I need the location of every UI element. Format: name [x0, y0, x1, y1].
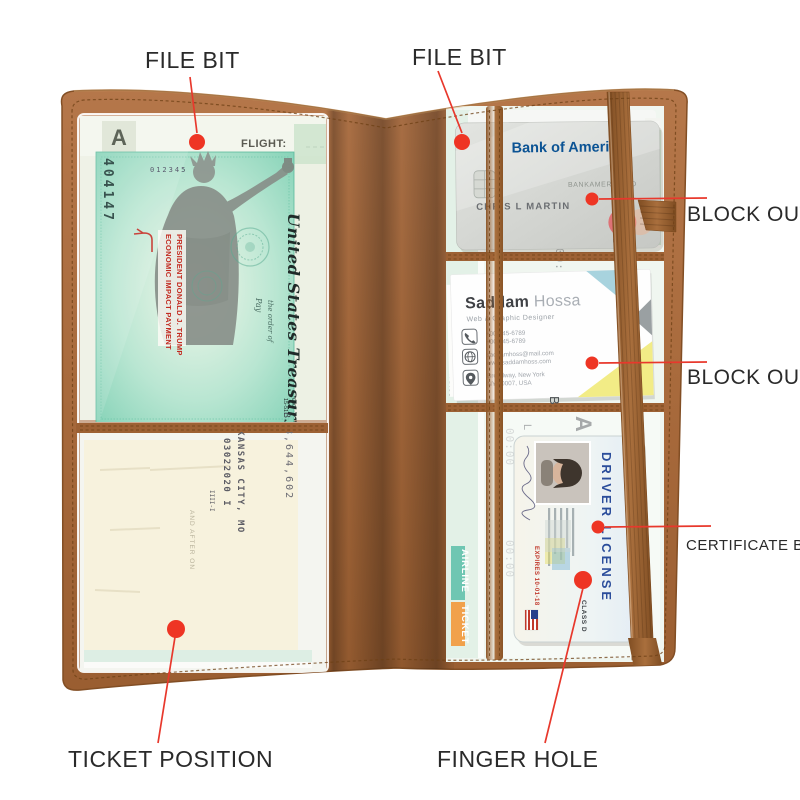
- left-panel: A FLIGHT: 404147 012345: [76, 114, 328, 672]
- checkback-faint-line: AND AFTER ON: [188, 510, 195, 570]
- check-fragment-b: B: [282, 412, 292, 418]
- check-fraction: 15-51: [282, 398, 288, 412]
- us-flag-icon: [525, 610, 538, 630]
- phone-icon: [462, 329, 477, 344]
- ticket-label: TICKET: [459, 605, 470, 644]
- finger-hole-label: FINGER HOLE: [437, 746, 598, 773]
- license-class: CLASS D: [580, 600, 587, 632]
- file-bit-right-label: FILE BIT: [412, 44, 507, 71]
- checkback-micr: IIII-I: [208, 490, 215, 512]
- order-label: the order of: [266, 300, 274, 344]
- wallet-photo: A FLIGHT: 404147 012345: [0, 0, 800, 800]
- stamp-line2: PRESIDENT DONALD J. TRUMP: [175, 234, 184, 356]
- stamp-line1: ECONOMIC IMPACT PAYMENT: [164, 234, 173, 350]
- bizcard-name: Saddam Hossa: [465, 292, 581, 312]
- block-out-bottom-label: BLOCK OUT: [687, 366, 800, 390]
- file-bit-left-dot: [189, 134, 205, 150]
- spine-strap: [486, 106, 503, 660]
- globe-icon: [462, 349, 477, 364]
- certificate-bit-line: [605, 526, 711, 527]
- license-photo: [535, 442, 590, 504]
- ticket-position-label: TICKET POSITION: [68, 746, 273, 773]
- block-out-bottom-line: [599, 362, 707, 363]
- flight-label: FLIGHT:: [241, 138, 287, 150]
- product-diagram: A FLIGHT: 404147 012345: [0, 0, 800, 800]
- check-back: KANSAS CITY, MO 03022020 I 8,644,602 III…: [80, 428, 326, 672]
- wallet-body: A FLIGHT: 404147 012345: [62, 88, 688, 690]
- file-bit-right-dot: [454, 134, 470, 150]
- checkback-date: 03022020 I: [221, 438, 231, 507]
- checkback-city: KANSAS CITY, MO: [235, 430, 245, 534]
- block-out-bottom-dot: [586, 357, 599, 370]
- license-expires: EXPIRES 10-01-18: [533, 546, 539, 606]
- license-ghost-photo: [545, 520, 571, 552]
- left-panel-seam: [76, 423, 328, 433]
- file-bit-left-label: FILE BIT: [145, 47, 240, 74]
- block-out-top-line: [599, 198, 707, 199]
- bizcard-last-name: Hossa: [529, 292, 581, 310]
- block-out-top-label: BLOCK OUT: [687, 203, 800, 227]
- location-pin-icon: [463, 370, 478, 385]
- finger-hole-dot: [574, 571, 592, 589]
- certificate-bit-label: CERTIFICATE BIT: [686, 537, 800, 554]
- right-panel: NO.00 AIRLINE TICKET 00:00 00:00 00:00: [446, 92, 676, 668]
- ticket-position-dot: [167, 620, 185, 638]
- airline-label: AIRLINE: [459, 549, 470, 593]
- spine-shading: [322, 88, 454, 672]
- check-fraction2: 000: [290, 398, 296, 407]
- checkback-amount: 8,644,602: [283, 428, 294, 500]
- pay-label: Pay: [254, 297, 263, 313]
- ticket-letter-b: B: [547, 396, 562, 405]
- certificate-bit-dot: [592, 521, 605, 534]
- ticket-edge-strip: [84, 650, 312, 662]
- block-out-top-dot: [586, 193, 599, 206]
